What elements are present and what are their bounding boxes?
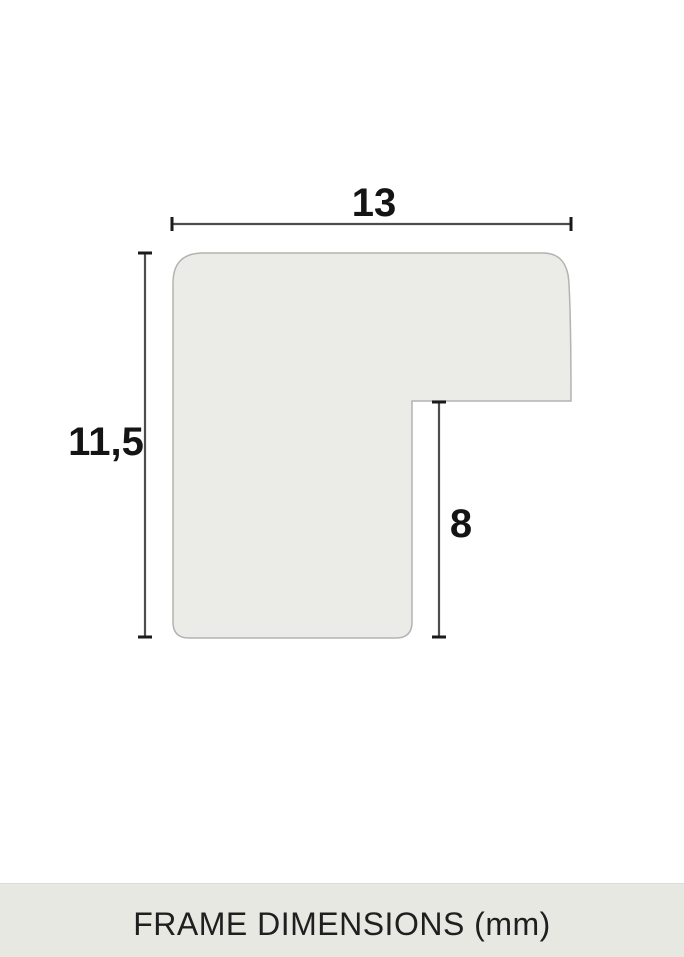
dimension-height-label: 11,5 <box>68 420 144 464</box>
dimension-rabbet-depth: 8 <box>432 402 472 637</box>
frame-profile-svg: 13 11,5 8 <box>0 0 684 883</box>
caption-bar: FRAME DIMENSIONS (mm) <box>0 883 684 957</box>
frame-profile-diagram: 13 11,5 8 <box>0 0 684 883</box>
dimension-width-label: 13 <box>352 181 397 225</box>
dimension-height: 11,5 <box>68 253 152 637</box>
frame-dimensions-page: 13 11,5 8 FRAME DIMENSIONS (mm) <box>0 0 684 957</box>
dimension-width: 13 <box>172 181 571 231</box>
dimension-rabbet-label: 8 <box>450 502 472 546</box>
frame-profile-shape <box>173 253 571 638</box>
caption-text: FRAME DIMENSIONS (mm) <box>133 898 551 943</box>
